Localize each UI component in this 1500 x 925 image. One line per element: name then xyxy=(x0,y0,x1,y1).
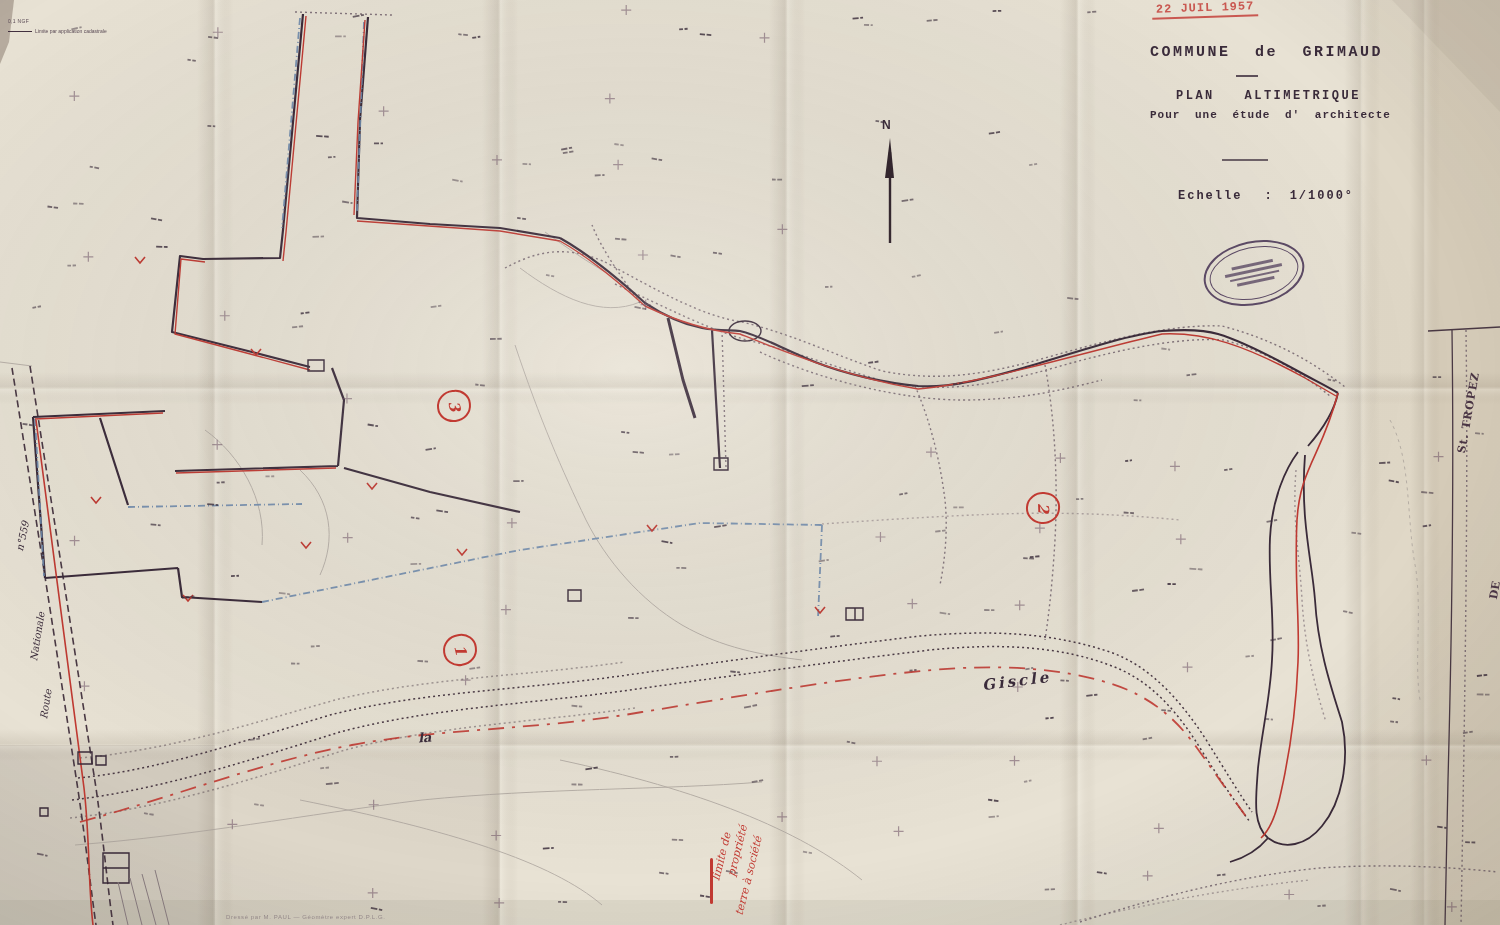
parcel-number-2-digit: 2 xyxy=(1034,502,1052,513)
scale-value: 1/1000° xyxy=(1290,189,1354,203)
title-rule xyxy=(1236,75,1258,77)
corner-note-ngf: 0,1 NGF xyxy=(8,18,29,24)
title-block: COMMUNE de GRIMAUD PLAN ALTIMETRIQUE Pou… xyxy=(1150,44,1430,203)
right-edge-label-de: DE xyxy=(1487,580,1500,600)
corner-note-legend-text: Limite par application cadastrale xyxy=(35,28,107,34)
plan-type: PLAN ALTIMETRIQUE xyxy=(1176,89,1430,103)
title-rule-2 xyxy=(1222,159,1268,161)
commune-title: COMMUNE de GRIMAUD xyxy=(1150,44,1430,61)
map-sheet: COMMUNE de GRIMAUD PLAN ALTIMETRIQUE Pou… xyxy=(0,0,1500,925)
scale-label: Echelle xyxy=(1178,189,1242,203)
north-label: N xyxy=(882,118,891,132)
legend-dash-icon xyxy=(8,31,32,32)
bottom-caption: Dressé par M. PAUL — Géomètre expert D.P… xyxy=(226,914,386,920)
corner-note-legend: Limite par application cadastrale xyxy=(8,28,107,34)
parcel-number-3-digit: 3 xyxy=(444,399,464,413)
scale-separator: : xyxy=(1264,189,1273,203)
scale-line: Echelle:1/1000° xyxy=(1178,189,1430,203)
plan-subtitle: Pour une étude d' architecte xyxy=(1150,109,1430,121)
river-article-label: la xyxy=(417,729,432,745)
parcel-number-1-digit: 1 xyxy=(450,643,470,657)
